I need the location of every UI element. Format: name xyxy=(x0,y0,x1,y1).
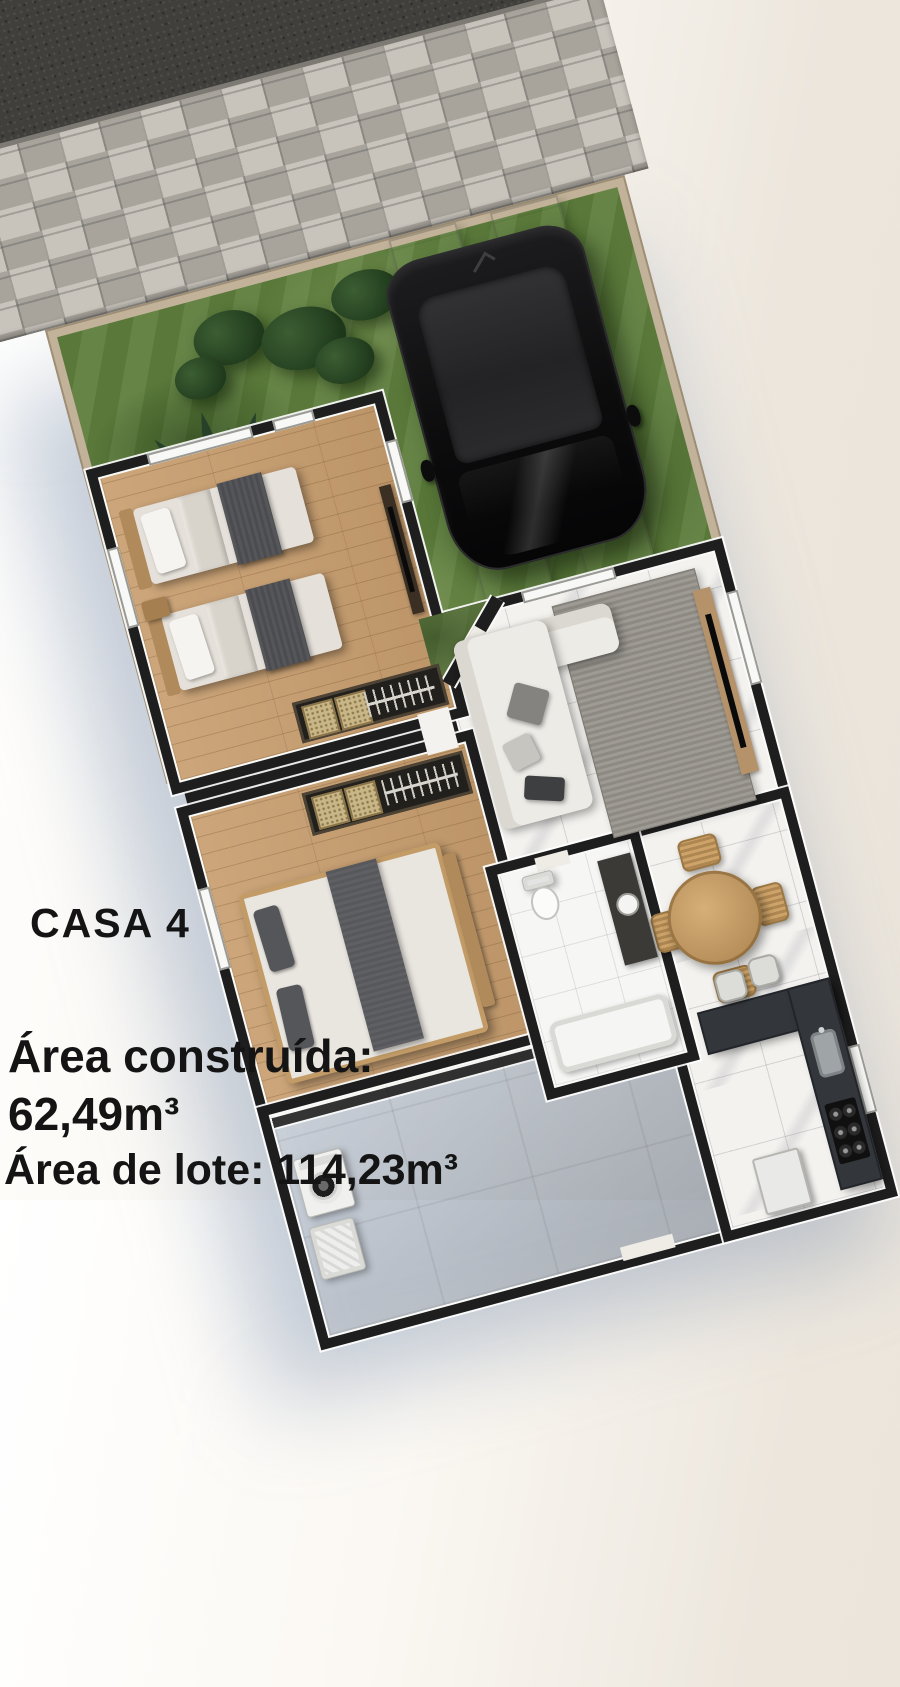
lot-area-line: Área de lote: 114,23m³ xyxy=(4,1148,458,1193)
built-area-value: 62,49m³ xyxy=(8,1090,179,1138)
car-sunroof-mark xyxy=(473,251,496,277)
built-area-label: Área construída: xyxy=(8,1032,374,1080)
faucet-icon xyxy=(818,1026,825,1033)
pillow xyxy=(252,904,296,973)
car-glass xyxy=(414,262,605,466)
throw-blanket xyxy=(524,775,565,801)
wicker-basket xyxy=(344,780,384,821)
site-plan xyxy=(0,0,900,1609)
washbasin xyxy=(614,890,642,918)
house-title: CASA 4 xyxy=(30,902,191,945)
bed-runner xyxy=(326,858,424,1051)
